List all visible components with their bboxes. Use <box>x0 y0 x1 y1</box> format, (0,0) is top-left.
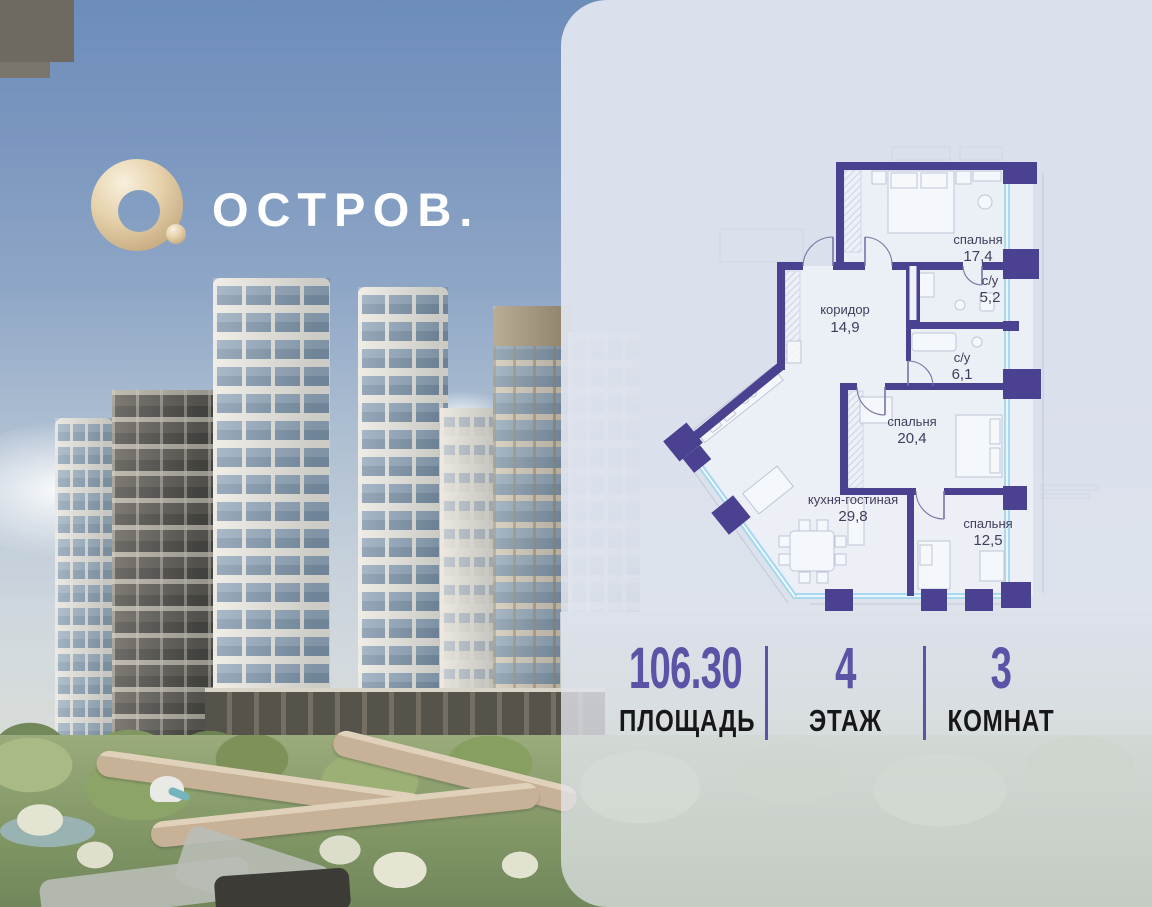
stat-floor: 4 ЭТАЖ <box>768 640 923 739</box>
stat-rooms-value: 3 <box>952 640 1051 698</box>
stat-rooms-label: КОМНАТ <box>943 703 1060 739</box>
room-area: 14,9 <box>830 319 859 336</box>
tower-dark-roof <box>0 62 50 78</box>
stat-rooms: 3 КОМНАТ <box>926 640 1076 739</box>
room-label: коридор <box>820 302 870 317</box>
stat-area-label: ПЛОЩАДЬ <box>619 703 747 739</box>
room-area: 29,8 <box>838 508 867 525</box>
stat-area-value: 106.30 <box>629 640 737 698</box>
room-label: с/у <box>954 350 971 365</box>
room-label: спальня <box>963 516 1012 531</box>
stat-floor-value: 4 <box>794 640 896 698</box>
stat-floor-label: ЭТАЖ <box>785 703 906 739</box>
tower-dark-roof <box>0 0 74 62</box>
floor-plan: спальня 17,4 с/у 5,2 коридор 14,9 с/у 6,… <box>660 145 1130 625</box>
plan-shaft <box>910 266 917 320</box>
room-area: 17,4 <box>963 248 992 265</box>
apartment-card[interactable]: ОСТРОВ. <box>0 0 1152 907</box>
brand-name: ОСТРОВ. <box>212 182 480 237</box>
room-label: с/у <box>982 273 999 288</box>
brand-logo: ОСТРОВ. <box>90 158 510 268</box>
stat-area: 106.30 ПЛОЩАДЬ <box>601 640 765 739</box>
room-area: 12,5 <box>973 532 1002 549</box>
room-area: 20,4 <box>897 430 926 447</box>
room-area: 5,2 <box>980 289 1001 306</box>
brand-logo-icon <box>90 158 200 268</box>
blossom-trees <box>0 780 600 907</box>
room-label: кухня-гостиная <box>808 492 898 507</box>
room-label: спальня <box>887 414 936 429</box>
room-label: спальня <box>953 232 1002 247</box>
info-panel: спальня 17,4 с/у 5,2 коридор 14,9 с/у 6,… <box>561 0 1152 907</box>
stats-row: 106.30 ПЛОЩАДЬ 4 ЭТАЖ 3 КОМНАТ <box>601 640 1079 752</box>
room-area: 6,1 <box>952 366 973 383</box>
